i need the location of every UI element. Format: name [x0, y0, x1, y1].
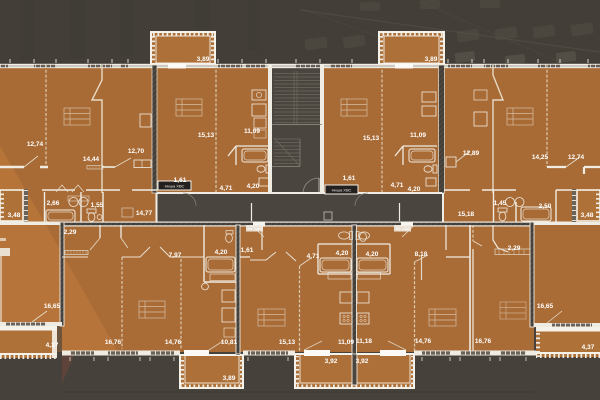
svg-text:Эл. щит: Эл. щит	[247, 226, 262, 231]
svg-text:10,81: 10,81	[221, 339, 238, 346]
svg-text:15,13: 15,13	[363, 135, 380, 142]
svg-text:4,20: 4,20	[366, 251, 379, 258]
svg-text:2,29: 2,29	[64, 229, 77, 236]
svg-text:16,65: 16,65	[44, 303, 61, 310]
svg-text:14,25: 14,25	[532, 154, 549, 161]
svg-text:14,77: 14,77	[136, 210, 153, 217]
svg-text:3,92: 3,92	[325, 358, 338, 365]
svg-text:14,76: 14,76	[165, 339, 182, 346]
svg-text:1,45: 1,45	[494, 200, 507, 207]
svg-text:8,18: 8,18	[415, 251, 428, 258]
svg-text:4,20: 4,20	[215, 249, 228, 256]
svg-text:7,97: 7,97	[169, 252, 182, 259]
svg-text:14,76: 14,76	[415, 338, 432, 345]
svg-text:11,18: 11,18	[356, 338, 372, 345]
svg-text:1,61: 1,61	[241, 247, 254, 254]
svg-text:12,89: 12,89	[463, 150, 480, 157]
svg-text:1,55: 1,55	[91, 202, 104, 209]
svg-text:Ниша ХВС: Ниша ХВС	[165, 184, 185, 189]
svg-text:11,09: 11,09	[244, 128, 260, 135]
svg-text:3,48: 3,48	[581, 212, 594, 219]
svg-text:16,65: 16,65	[537, 303, 554, 310]
svg-text:4,71: 4,71	[307, 253, 320, 260]
svg-text:Ниша ХВС: Ниша ХВС	[332, 188, 352, 193]
svg-text:3,89: 3,89	[425, 56, 438, 63]
svg-text:4,20: 4,20	[247, 183, 260, 190]
svg-text:3,89: 3,89	[223, 375, 236, 382]
svg-text:2,29: 2,29	[508, 245, 521, 252]
svg-text:4,20: 4,20	[408, 186, 421, 193]
svg-text:4,37: 4,37	[582, 344, 595, 351]
svg-text:14,44: 14,44	[83, 156, 100, 163]
svg-text:12,74: 12,74	[568, 154, 585, 161]
svg-text:16,76: 16,76	[475, 338, 492, 345]
svg-text:4,20: 4,20	[336, 250, 349, 257]
svg-text:Эл. щит: Эл. щит	[395, 226, 410, 231]
svg-text:12,74: 12,74	[27, 141, 44, 148]
svg-text:2,50: 2,50	[539, 203, 552, 210]
svg-text:3,48: 3,48	[8, 212, 21, 219]
svg-text:11,09: 11,09	[410, 132, 426, 139]
svg-text:4,71: 4,71	[391, 182, 404, 189]
svg-text:15,13: 15,13	[198, 132, 215, 139]
svg-text:4,37: 4,37	[46, 342, 59, 349]
svg-text:3,92: 3,92	[356, 358, 369, 365]
svg-text:11,09: 11,09	[338, 339, 354, 346]
svg-text:2,66: 2,66	[47, 200, 60, 207]
svg-text:1,61: 1,61	[343, 175, 356, 182]
svg-text:4,71: 4,71	[220, 185, 233, 192]
svg-text:3,89: 3,89	[197, 56, 210, 63]
svg-text:16,76: 16,76	[105, 339, 122, 346]
svg-text:15,13: 15,13	[279, 339, 296, 346]
svg-text:1,61: 1,61	[174, 177, 187, 184]
svg-text:15,18: 15,18	[458, 211, 475, 218]
svg-text:12,70: 12,70	[128, 148, 145, 155]
